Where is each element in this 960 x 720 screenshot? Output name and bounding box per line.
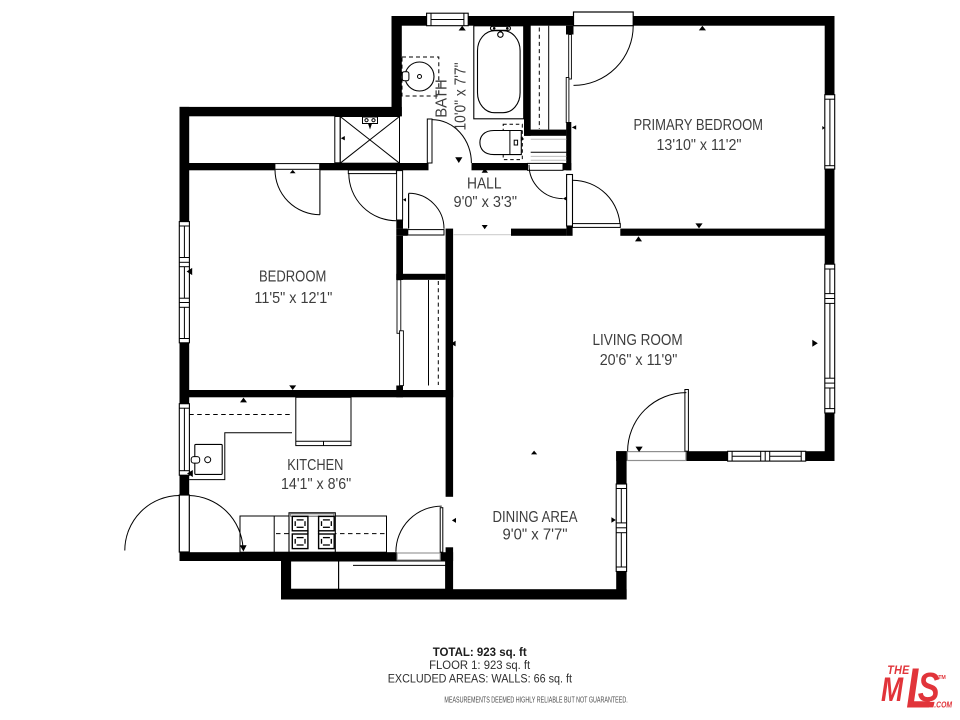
svg-text:20'6" x 11'9": 20'6" x 11'9": [600, 352, 678, 369]
svg-text:LIVING ROOM: LIVING ROOM: [593, 332, 683, 349]
svg-text:.COM: .COM: [934, 700, 952, 710]
svg-text:PRIMARY BEDROOM: PRIMARY BEDROOM: [634, 117, 764, 134]
svg-text:BEDROOM: BEDROOM: [259, 268, 326, 285]
svg-text:14'1" x 8'6": 14'1" x 8'6": [281, 476, 351, 493]
svg-text:9'0" x 3'3": 9'0" x 3'3": [454, 194, 518, 211]
svg-text:M: M: [881, 671, 904, 709]
svg-text:TM: TM: [938, 675, 946, 681]
svg-text:TOTAL: 923 sq. ft: TOTAL: 923 sq. ft: [433, 645, 527, 659]
svg-text:11'5" x 12'1": 11'5" x 12'1": [254, 290, 332, 307]
svg-text:FLOOR 1: 923 sq. ft: FLOOR 1: 923 sq. ft: [429, 658, 531, 672]
svg-text:HALL: HALL: [467, 175, 502, 192]
svg-text:13'10" x 11'2": 13'10" x 11'2": [657, 137, 742, 154]
svg-text:KITCHEN: KITCHEN: [287, 457, 343, 474]
svg-text:DINING AREA: DINING AREA: [493, 509, 579, 526]
svg-text:EXCLUDED AREAS: WALLS: 66 sq.: EXCLUDED AREAS: WALLS: 66 sq. ft: [388, 672, 573, 686]
svg-text:9'0" x 7'7": 9'0" x 7'7": [503, 527, 568, 544]
svg-text:MEASUREMENTS DEEMED HIGHLY REL: MEASUREMENTS DEEMED HIGHLY RELIABLE BUT …: [444, 696, 627, 705]
svg-text:BATH: BATH: [434, 79, 451, 118]
svg-text:10'0" x 7'7": 10'0" x 7'7": [453, 63, 470, 131]
